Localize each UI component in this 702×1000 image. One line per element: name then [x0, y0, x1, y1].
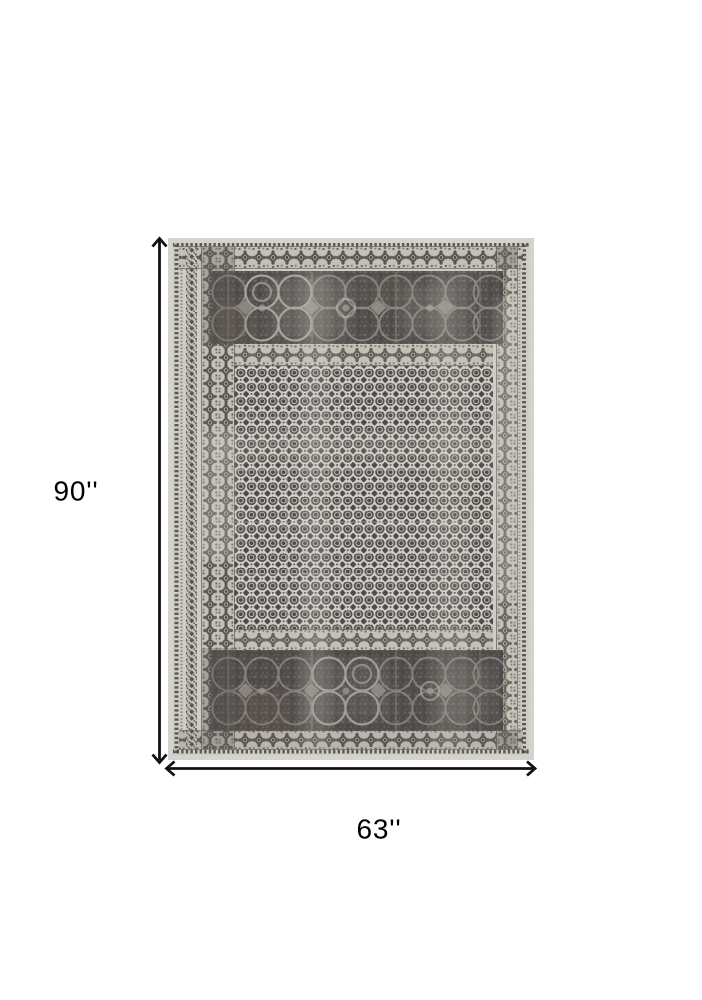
svg-text:63'': 63'' [356, 814, 401, 845]
svg-text:90'': 90'' [53, 476, 98, 507]
